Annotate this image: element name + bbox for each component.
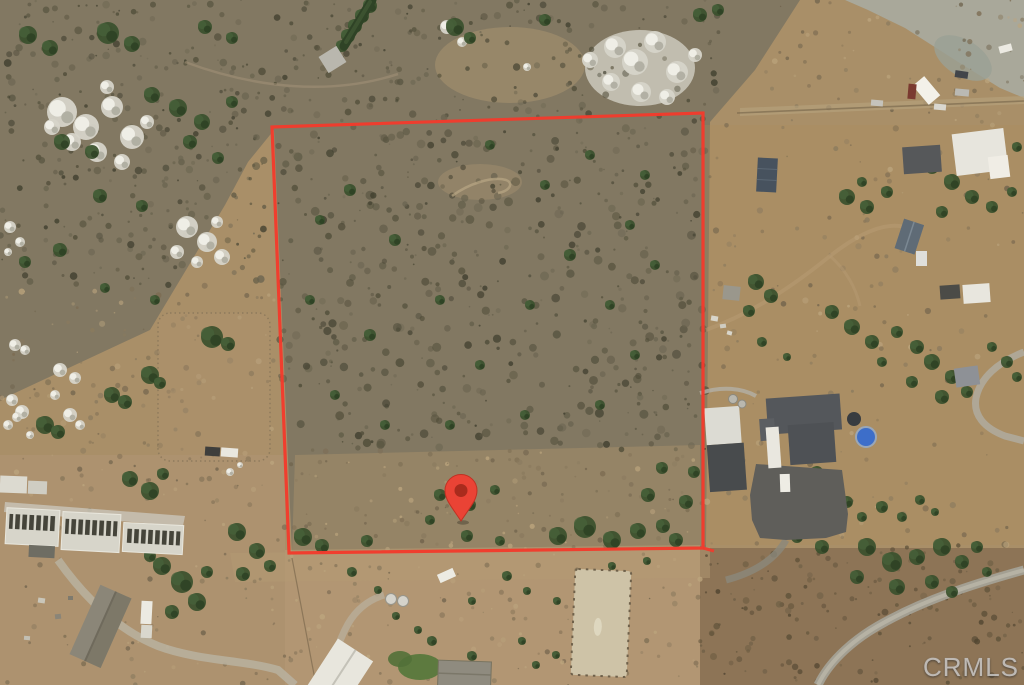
crmls-watermark: CRMLS (923, 652, 1019, 683)
pin-shadow (457, 520, 469, 524)
horse-arena (571, 569, 632, 677)
pin-inner-circle (455, 484, 468, 497)
solar-panel-array (756, 157, 778, 192)
driveway-asphalt (750, 464, 848, 540)
yard-building (438, 660, 492, 685)
satellite-photo: CRMLS (0, 0, 1024, 685)
satellite-map-canvas (0, 0, 1024, 685)
